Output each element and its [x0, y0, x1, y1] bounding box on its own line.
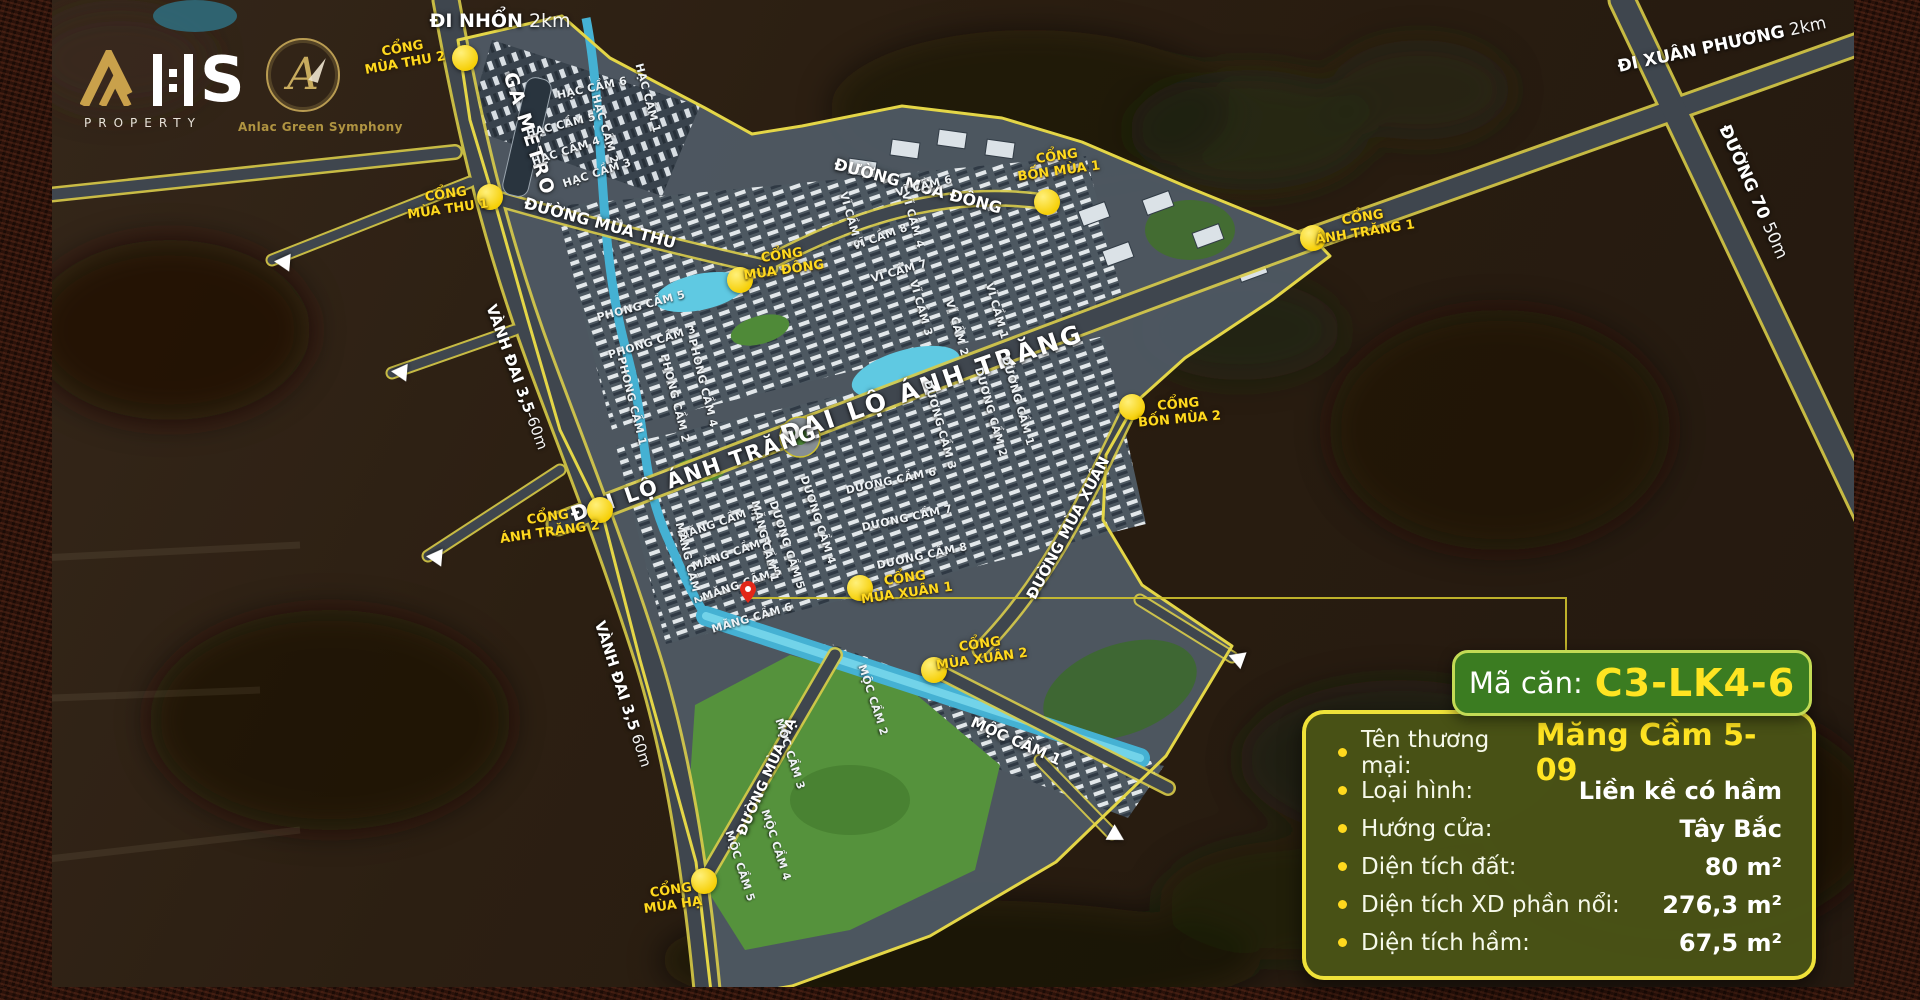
panel-row: Hướng cửa:Tây Bắc [1338, 810, 1782, 848]
panel-row-label: Diện tích XD phần nổi: [1361, 892, 1620, 918]
masterplan-page: S PROPERTY A Anlac Green Symphony ĐI NHỔ… [0, 0, 1920, 1000]
unit-info-body: Tên thương mại:Măng Cầm 5-09Loại hình:Li… [1302, 710, 1816, 980]
ahis-bar-left [153, 54, 162, 106]
panel-row: Diện tích đất:80 m² [1338, 848, 1782, 886]
central-plaza [780, 417, 820, 457]
ahis-colon-dots [169, 54, 177, 106]
panel-row-value: Tây Bắc [1679, 815, 1782, 843]
anlac-monogram-ring: A [266, 38, 340, 112]
panel-row-value: 80 m² [1705, 853, 1782, 881]
bullet-icon [1338, 938, 1347, 947]
ahis-subtitle: PROPERTY [84, 116, 243, 130]
unit-info-panel: Tên thương mại:Măng Cầm 5-09Loại hình:Li… [1302, 650, 1816, 980]
panel-row-label: Loại hình: [1361, 778, 1473, 804]
anlac-green-symphony-logo: A Anlac Green Symphony [238, 38, 368, 134]
ahis-property-logo: S PROPERTY [80, 50, 243, 130]
unit-info-rows: Tên thương mại:Măng Cầm 5-09Loại hình:Li… [1338, 734, 1782, 962]
bullet-icon [1338, 748, 1347, 757]
panel-row-label: Diện tích hầm: [1361, 930, 1530, 956]
panel-row-label: Diện tích đất: [1361, 854, 1517, 880]
lake [153, 0, 237, 32]
panel-row-label: Hướng cửa: [1361, 816, 1493, 842]
panel-row: Tên thương mại:Măng Cầm 5-09 [1338, 734, 1782, 772]
panel-row: Diện tích XD phần nổi:276,3 m² [1338, 886, 1782, 924]
unit-code-label: Mã căn: [1469, 666, 1583, 700]
bullet-icon [1338, 900, 1347, 909]
bullet-icon [1338, 824, 1347, 833]
ahis-a-glyph [80, 50, 146, 106]
ahis-wordmark: S [80, 50, 243, 106]
panel-row-value: Liền kề có hầm [1579, 777, 1782, 805]
panel-row-value: 67,5 m² [1679, 929, 1782, 957]
unit-code-value: C3-LK4-6 [1595, 661, 1795, 705]
unit-code-header: Mã căn: C3-LK4-6 [1452, 650, 1812, 716]
ahis-bar-right [184, 54, 193, 106]
bullet-icon [1338, 862, 1347, 871]
panel-row: Loại hình:Liền kề có hầm [1338, 772, 1782, 810]
ahis-s-letter: S [200, 55, 243, 106]
panel-row: Diện tích hầm:67,5 m² [1338, 924, 1782, 962]
anlac-project-name: Anlac Green Symphony [238, 120, 368, 134]
bullet-icon [1338, 786, 1347, 795]
panel-row-value: 276,3 m² [1662, 891, 1782, 919]
